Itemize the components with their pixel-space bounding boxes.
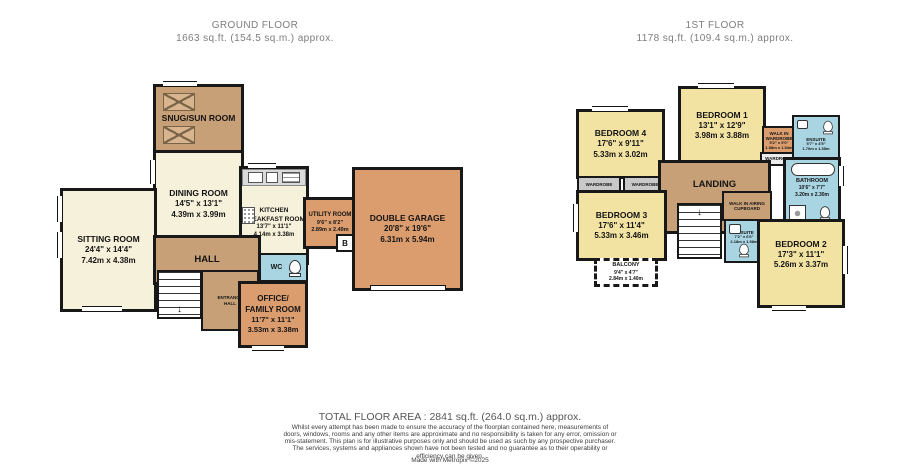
room-sitting: SITTING ROOM 24'4" x 14'4" 7.42m x 4.38m (60, 188, 157, 312)
room-dims-metric: 3.98m x 3.88m (695, 131, 749, 141)
total-floor-area: TOTAL FLOOR AREA : 2841 sq.ft. (264.0 sq… (0, 411, 900, 423)
window (592, 106, 628, 112)
window (838, 166, 844, 186)
room-dims-imperial: 20'8" x 19'6" (370, 224, 446, 234)
room-dims-metric: 7.42m x 4.38m (77, 256, 139, 266)
room-name: WALK IN AIRING CUPBOARD (729, 201, 765, 211)
room-name: DINING ROOM (169, 188, 228, 199)
room-bedroom-3: BEDROOM 3 17'6" x 11'4" 5.33m x 3.46m (576, 190, 667, 261)
room-dims-metric: 5.33m x 3.02m (593, 150, 647, 160)
room-name: BEDROOM 3 (594, 210, 648, 221)
first-floor-header: 1ST FLOOR 1178 sq.ft. (109.4 sq.m.) appr… (560, 20, 870, 45)
room-dims-metric: 6.31m x 5.94m (370, 235, 446, 245)
room-label: LANDING (693, 179, 736, 191)
room-walk-in-wardrobe: WALK IN WARDROBE 5'2" x 5'0" 1.58m x 1.5… (762, 126, 796, 155)
room-label: SNUG/SUN ROOM (162, 113, 236, 124)
room-name: BATHROOM (795, 178, 829, 185)
room-name: WC (271, 263, 283, 272)
room-dims-imperial: 24'4" x 14'4" (77, 245, 139, 255)
room-label: UTILITY ROOM 9'6" x 8'2" 2.89m x 2.49m (309, 212, 352, 234)
room-name: SNUG/SUN ROOM (162, 113, 236, 124)
disclaimer-text: Whilst every attempt has been made to en… (283, 424, 618, 460)
first-floor-area: 1178 sq.ft. (109.4 sq.m.) approx. (560, 33, 870, 46)
room-label: HALL (194, 254, 219, 266)
window (698, 83, 734, 89)
window (57, 196, 63, 222)
window (252, 345, 284, 351)
room-label: BATHROOM 10'6" x 7'7" 3.20m x 2.30m (795, 178, 829, 198)
room-bedroom-1: BEDROOM 1 13'1" x 12'9" 3.98m x 3.88m (678, 86, 766, 165)
sink-icon (729, 224, 741, 234)
room-label: DOUBLE GARAGE 20'8" x 19'6" 6.31m x 5.94… (370, 213, 446, 245)
toilet-icon (289, 260, 301, 277)
room-label: DINING ROOM 14'5" x 13'1" 4.39m x 3.99m (169, 188, 228, 220)
garage-door (370, 285, 446, 291)
room-label: WALK IN AIRING CUPBOARD (729, 201, 765, 211)
room-name: OFFICE/ FAMILY ROOM (244, 294, 302, 315)
room-name: BEDROOM 2 (774, 239, 828, 250)
wardrobe-label: WARDROBE (586, 182, 613, 187)
room-dims-imperial: 17'6" x 9'11" (593, 139, 647, 149)
room-dims-imperial: 17'3" x 11'1" (774, 250, 828, 260)
room-name: BALCONY (609, 262, 643, 269)
hob-icon (266, 172, 278, 183)
room-dims-metric: 2.84m x 1.40m (609, 276, 643, 283)
room-dims-imperial: 14'5" x 13'1" (169, 199, 228, 209)
window (772, 305, 806, 311)
window (163, 81, 197, 87)
room-dims-imperial: 10'6" x 7'7" (795, 185, 829, 192)
toilet-icon (823, 121, 833, 135)
room-double-garage: DOUBLE GARAGE 20'8" x 19'6" 6.31m x 5.94… (352, 167, 463, 291)
skylight-icon (163, 93, 195, 111)
room-dims-imperial: 13'1" x 12'9" (695, 121, 749, 131)
room-label: BEDROOM 2 17'3" x 11'1" 5.26m x 3.37m (774, 239, 828, 271)
room-name: SITTING ROOM (77, 234, 139, 245)
room-snug-sun: SNUG/SUN ROOM (153, 84, 244, 153)
room-name: BEDROOM 1 (695, 110, 749, 121)
floorplan-canvas: GROUND FLOOR 1663 sq.ft. (154.5 sq.m.) a… (0, 0, 900, 471)
stairs-first-floor: ↓ (677, 203, 722, 259)
room-wc: WC (259, 253, 308, 282)
credit-line: Made with Metropix ©2025 (0, 457, 900, 464)
window (573, 204, 579, 232)
window (82, 306, 122, 312)
room-label: BALCONY 9'4" x 4'7" 2.84m x 1.40m (609, 262, 643, 282)
balcony: BALCONY 9'4" x 4'7" 2.84m x 1.40m (594, 258, 658, 287)
room-dims-metric: 4.39m x 3.99m (169, 210, 228, 220)
ground-floor-title: GROUND FLOOR (100, 20, 410, 33)
stairs-direction-arrow-icon: ↓ (159, 304, 200, 315)
room-name: BEDROOM 4 (593, 128, 647, 139)
stairs-direction-arrow-icon: ↓ (679, 207, 720, 218)
room-label: SITTING ROOM 24'4" x 14'4" 7.42m x 4.38m (77, 234, 139, 266)
room-label: WALK IN WARDROBE 5'2" x 5'0" 1.58m x 1.5… (765, 131, 793, 151)
first-floor-title: 1ST FLOOR (560, 20, 870, 33)
room-dims-metric: 5.26m x 3.37m (774, 260, 828, 270)
oven-icon (282, 172, 300, 183)
room-bedroom-2: BEDROOM 2 17'3" x 11'1" 5.26m x 3.37m (757, 219, 845, 308)
room-name: UTILITY ROOM (309, 212, 352, 220)
room-dims-imperial: 9'6" x 8'2" (309, 220, 352, 227)
sink-icon (248, 172, 263, 183)
bathtub-icon (791, 163, 835, 176)
room-dims-imperial: 13'7" x 11'1" (242, 224, 306, 232)
toilet-icon (739, 244, 749, 258)
skylight-icon (163, 126, 195, 144)
room-label: BEDROOM 4 17'6" x 9'11" 5.33m x 3.02m (593, 128, 647, 160)
room-dims-imperial: 11'7" x 11'1" (244, 315, 302, 325)
room-label: BEDROOM 1 13'1" x 12'9" 3.98m x 3.88m (695, 110, 749, 142)
worktop-icon (242, 207, 255, 224)
room-dims-metric: 5.33m x 3.46m (594, 231, 648, 241)
sink-icon (797, 120, 808, 129)
room-bedroom-4: BEDROOM 4 17'6" x 9'11" 5.33m x 3.02m (576, 109, 665, 179)
window (248, 163, 276, 169)
room-dims-metric: 2.89m x 2.49m (309, 227, 352, 234)
room-label: ENSUITE 5'7" x 4'5" 1.70m x 1.35m (802, 137, 829, 151)
room-walk-in-airing-cupboard: WALK IN AIRING CUPBOARD (722, 191, 772, 221)
window (57, 232, 63, 258)
ground-floor-header: GROUND FLOOR 1663 sq.ft. (154.5 sq.m.) a… (100, 20, 410, 45)
room-label: OFFICE/ FAMILY ROOM 11'7" x 11'1" 3.53m … (244, 294, 302, 334)
stairs-ground-floor: ↓ (157, 270, 202, 319)
room-office-family: OFFICE/ FAMILY ROOM 11'7" x 11'1" 3.53m … (238, 281, 308, 348)
room-label: BEDROOM 3 17'6" x 11'4" 5.33m x 3.46m (594, 210, 648, 242)
room-ensuite-1: ENSUITE 5'7" x 4'5" 1.70m x 1.35m (792, 115, 840, 159)
room-name: DOUBLE GARAGE (370, 213, 446, 224)
ground-floor-area: 1663 sq.ft. (154.5 sq.m.) approx. (100, 33, 410, 46)
room-dims-metric: 3.53m x 3.38m (244, 325, 302, 335)
window (842, 246, 848, 274)
room-dims-metric: 1.70m x 1.35m (802, 147, 829, 152)
room-label: WC (271, 263, 283, 272)
room-dims-metric: 3.20m x 2.30m (795, 192, 829, 199)
window (150, 160, 156, 184)
room-dims-metric: 1.58m x 1.54m (765, 146, 793, 151)
room-name: LANDING (693, 179, 736, 191)
wardrobe-label: WARDROBE (632, 182, 659, 187)
room-dims-imperial: 17'6" x 11'4" (594, 221, 648, 231)
room-name: HALL (194, 254, 219, 266)
